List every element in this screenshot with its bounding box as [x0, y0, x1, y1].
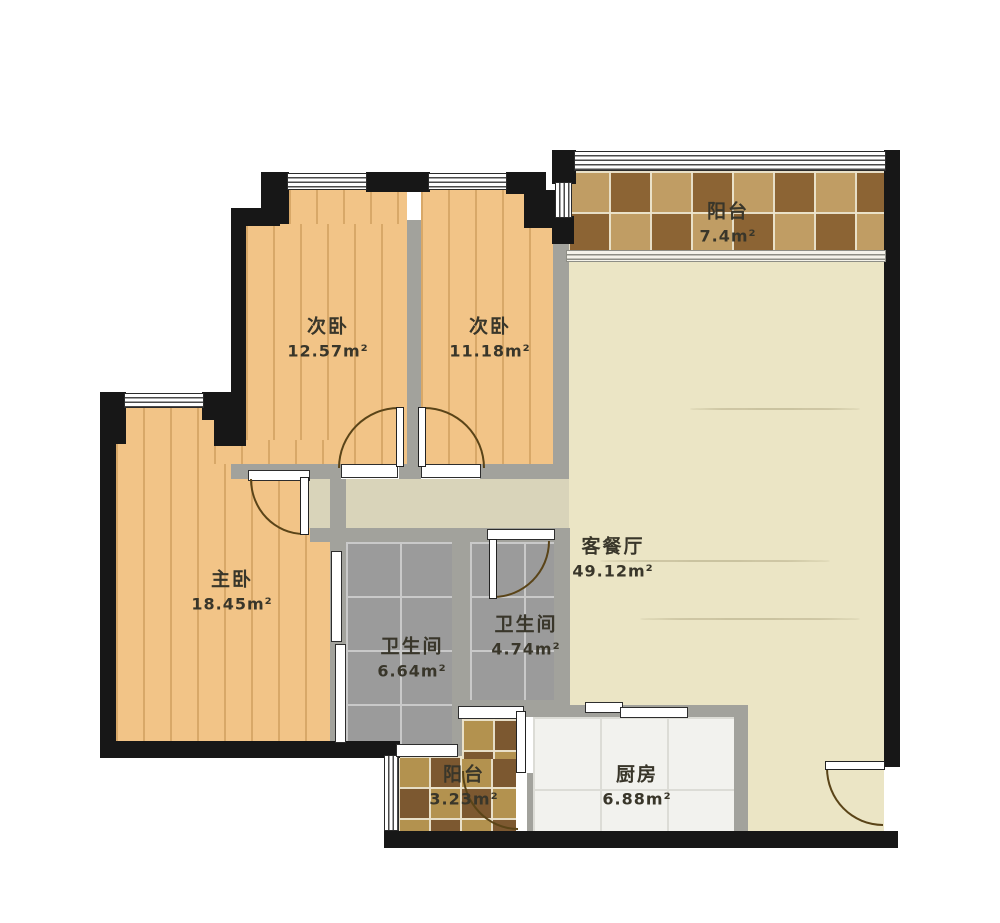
entry-door — [825, 761, 885, 770]
master-door — [300, 477, 309, 535]
room-name: 主卧 — [191, 567, 272, 593]
room-name: 阳台 — [699, 199, 756, 225]
room-label-bathroom-a: 卫生间 6.64m² — [377, 634, 446, 681]
west-exterior-wall — [100, 392, 116, 758]
bedroom-b-door — [418, 407, 426, 467]
room-area: 11.18m² — [449, 340, 530, 362]
room-label-balcony-top: 阳台 7.4m² — [699, 199, 756, 246]
hallway-floor — [307, 479, 569, 528]
bedroom-a-west-wall — [231, 208, 246, 446]
bedroom-b-window — [428, 173, 507, 190]
room-label-master-bedroom: 主卧 18.45m² — [191, 567, 272, 614]
balcony-bottom-window — [384, 755, 399, 831]
room-area: 7.4m² — [699, 225, 756, 247]
wall-between-bathrooms — [452, 542, 470, 712]
room-label-living-dining: 客餐厅 49.12m² — [572, 534, 653, 581]
kitchen-west-wall — [527, 773, 533, 833]
balcony-west-wall — [552, 150, 576, 184]
room-name: 客餐厅 — [572, 534, 653, 560]
room-area: 49.12m² — [572, 560, 653, 582]
bedroom-a-northwest-wall — [261, 172, 289, 224]
floor-texture-streak — [690, 408, 860, 410]
kitchen-counter — [620, 707, 688, 718]
bedrooms-north-wall — [366, 172, 430, 192]
bedroom-a-floor — [289, 190, 407, 226]
bathroom-a-balcony-window — [396, 744, 458, 757]
room-name: 阳台 — [429, 762, 498, 788]
bedroom-b-east-wall — [553, 226, 569, 466]
balcony-bottom-door — [516, 711, 526, 773]
bathroom-b-door-lintel — [487, 529, 555, 540]
balcony-bottom-floor — [462, 719, 516, 759]
room-area: 4.74m² — [491, 638, 560, 660]
living-balcony-slider — [566, 250, 886, 262]
room-label-kitchen: 厨房 6.88m² — [602, 762, 671, 809]
room-label-balcony-bottom: 阳台 3.23m² — [429, 762, 498, 809]
bedroom-b-floor — [421, 190, 524, 230]
room-name: 卫生间 — [491, 612, 560, 638]
master-bedroom-window — [124, 393, 204, 408]
kitchen-counter — [585, 702, 623, 713]
bathroom-a-sliding-door — [335, 644, 346, 743]
room-area: 3.23m² — [429, 788, 498, 810]
room-name: 厨房 — [602, 762, 671, 788]
bedrooms-south-wall — [480, 464, 569, 479]
balcony-top-side-window — [555, 182, 572, 218]
balcony-top-window — [574, 151, 886, 171]
room-area: 12.57m² — [287, 340, 368, 362]
floor-plan: 阳台 7.4m² 次卧 12.57m² 次卧 11.18m² 主卧 18.45m… — [0, 0, 1000, 923]
bedroom-a-window — [287, 173, 367, 190]
room-name: 卫生间 — [377, 634, 446, 660]
bathroom-b-balcony-window — [458, 706, 524, 719]
east-exterior-wall — [884, 150, 900, 767]
master-south-wall — [100, 741, 400, 758]
room-label-bedroom-a: 次卧 12.57m² — [287, 314, 368, 361]
floor-texture-streak — [640, 618, 860, 620]
room-name: 次卧 — [287, 314, 368, 340]
room-label-bedroom-b: 次卧 11.18m² — [449, 314, 530, 361]
bathroom-a-sliding-door — [331, 551, 342, 642]
room-area: 6.88m² — [602, 788, 671, 810]
room-label-bathroom-b: 卫生间 4.74m² — [491, 612, 560, 659]
south-exterior-wall — [384, 831, 898, 848]
room-area: 6.64m² — [377, 660, 446, 682]
room-name: 次卧 — [449, 314, 530, 340]
bedroom-a-door — [396, 407, 404, 467]
balcony-west-wall — [552, 216, 574, 244]
kitchen-east-wall — [734, 705, 748, 848]
bathroom-b-door — [489, 539, 497, 599]
room-area: 18.45m² — [191, 593, 272, 615]
living-dining-floor — [569, 262, 884, 705]
